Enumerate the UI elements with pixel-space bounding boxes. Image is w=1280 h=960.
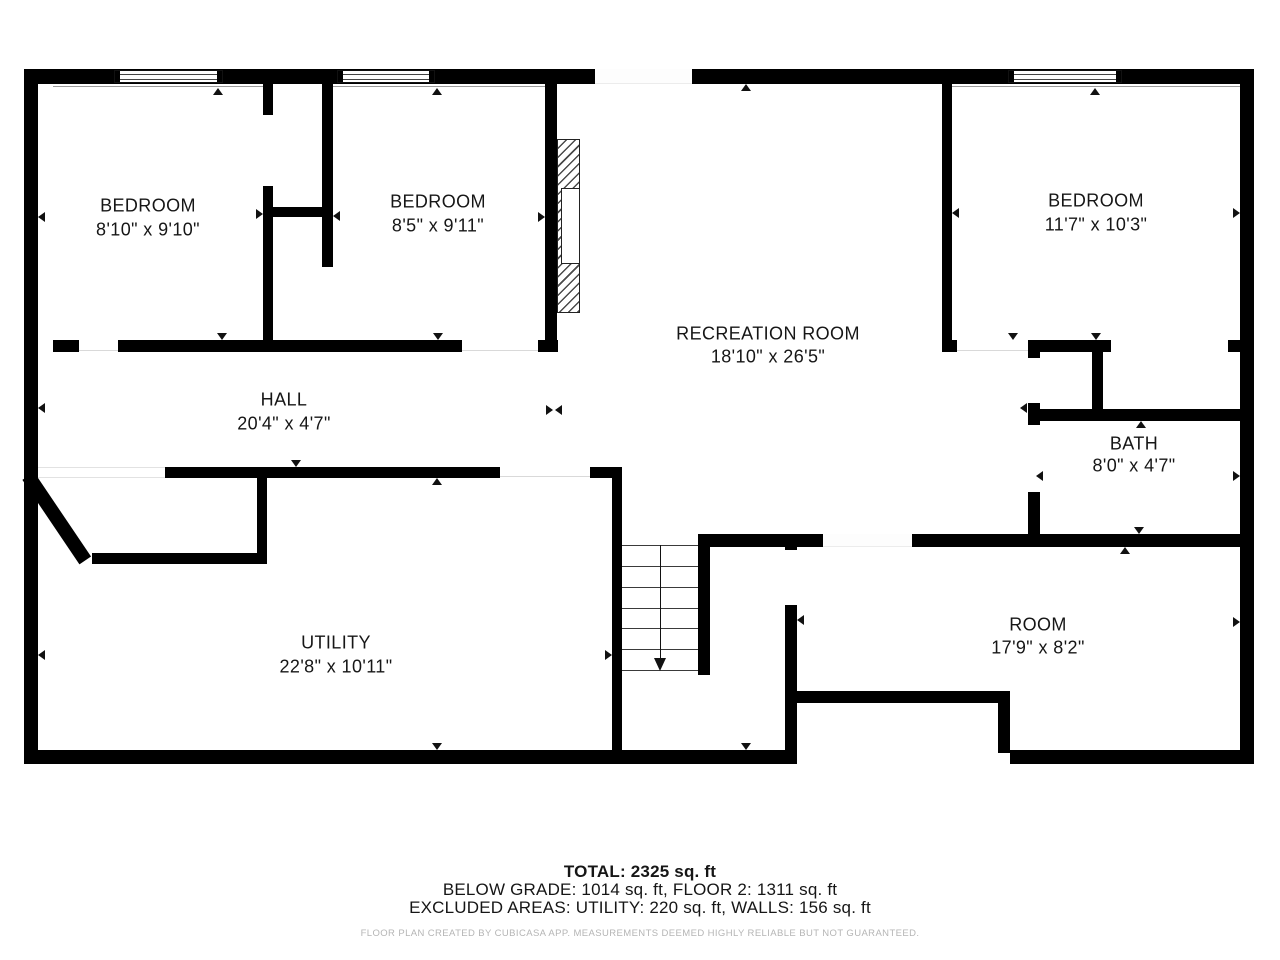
window-symbol bbox=[114, 70, 223, 83]
dimension-marker-left bbox=[38, 403, 45, 413]
dimension-marker-up bbox=[741, 84, 751, 91]
wall bbox=[545, 84, 557, 352]
dimension-marker-up bbox=[432, 88, 442, 95]
wall bbox=[1028, 409, 1240, 421]
wall bbox=[1228, 340, 1240, 352]
wall bbox=[912, 534, 1240, 547]
dimension-marker-up bbox=[1120, 547, 1130, 554]
room-label: BATH bbox=[1110, 434, 1158, 455]
room-dimensions: 8'10" x 9'10" bbox=[96, 220, 200, 241]
window-pane-line bbox=[1009, 79, 1121, 80]
dimension-marker-left bbox=[1036, 471, 1043, 481]
room-dimensions: 11'7" x 10'3" bbox=[1045, 215, 1148, 236]
dimension-marker-right bbox=[546, 405, 553, 415]
door-threshold bbox=[462, 350, 538, 351]
room-label: HALL bbox=[261, 390, 308, 411]
room-dimensions: 18'10" x 26'5" bbox=[711, 347, 825, 368]
room-dimensions: 8'0" x 4'7" bbox=[1092, 456, 1175, 477]
dimension-marker-down bbox=[1008, 333, 1018, 340]
floor-plan-canvas: BEDROOM8'10" x 9'10"BEDROOM8'5" x 9'11"B… bbox=[0, 0, 1280, 960]
dimension-marker-left bbox=[38, 650, 45, 660]
wall bbox=[785, 605, 797, 764]
wall bbox=[797, 691, 1010, 703]
wall bbox=[785, 534, 797, 550]
window-pane-line bbox=[1009, 74, 1121, 75]
room-dimensions: 22'8" x 10'11" bbox=[280, 657, 393, 678]
room-label: UTILITY bbox=[301, 633, 371, 654]
dimension-marker-up bbox=[1090, 88, 1100, 95]
dimension-marker-left bbox=[555, 405, 562, 415]
summary-disclaimer: FLOOR PLAN CREATED BY CUBICASA APP. MEAS… bbox=[0, 928, 1280, 939]
wall bbox=[53, 340, 79, 352]
stair-down-arrow-icon bbox=[654, 658, 666, 671]
summary-excluded: EXCLUDED AREAS: UTILITY: 220 sq. ft, WAL… bbox=[0, 898, 1280, 918]
room-label: ROOM bbox=[1009, 615, 1067, 636]
wall bbox=[1092, 343, 1103, 410]
entry-opening bbox=[595, 69, 692, 84]
wall bbox=[92, 553, 267, 564]
room-label: BEDROOM bbox=[1048, 191, 1144, 212]
dimension-marker-right bbox=[256, 209, 263, 219]
window-pane-line bbox=[338, 79, 434, 80]
dimension-marker-left bbox=[952, 208, 959, 218]
window-symbol bbox=[337, 70, 435, 83]
stair-direction-line bbox=[660, 545, 661, 659]
staircase bbox=[622, 545, 698, 672]
dimension-marker-down bbox=[1134, 527, 1144, 534]
wall bbox=[998, 703, 1010, 753]
dimension-marker-down bbox=[1091, 333, 1101, 340]
wall bbox=[24, 750, 785, 764]
dimension-marker-down bbox=[432, 743, 442, 750]
window-pane-line bbox=[338, 74, 434, 75]
summary-total: TOTAL: 2325 sq. ft bbox=[0, 862, 1280, 882]
door-threshold bbox=[79, 350, 118, 351]
window-end-cap bbox=[217, 71, 222, 82]
wall bbox=[698, 534, 823, 547]
fireplace-hatch bbox=[557, 139, 580, 313]
dimension-marker-right bbox=[1233, 617, 1240, 627]
dimension-marker-right bbox=[605, 650, 612, 660]
window-end-cap bbox=[429, 71, 434, 82]
room-dimensions: 17'9" x 8'2" bbox=[991, 638, 1085, 659]
door-threshold bbox=[500, 476, 590, 477]
dimension-marker-up bbox=[432, 478, 442, 485]
wall bbox=[1240, 69, 1254, 764]
window-pane-line bbox=[115, 74, 222, 75]
wall bbox=[165, 467, 500, 478]
wall bbox=[1010, 750, 1254, 764]
wall bbox=[942, 84, 952, 352]
dimension-marker-right bbox=[1233, 471, 1240, 481]
dimension-marker-up bbox=[1136, 421, 1146, 428]
dimension-marker-left bbox=[333, 211, 340, 221]
room-dimensions: 20'4" x 4'7" bbox=[237, 414, 331, 435]
wall bbox=[1028, 340, 1040, 358]
window-end-cap bbox=[338, 71, 343, 82]
dimension-marker-left bbox=[797, 615, 804, 625]
summary-breakdown: BELOW GRADE: 1014 sq. ft, FLOOR 2: 1311 … bbox=[0, 880, 1280, 900]
room-opening bbox=[823, 534, 912, 547]
wall bbox=[263, 84, 273, 115]
window-end-cap bbox=[1009, 71, 1014, 82]
wall bbox=[257, 478, 267, 553]
wall bbox=[263, 186, 273, 352]
dimension-marker-down bbox=[433, 333, 443, 340]
hall-opening bbox=[38, 467, 165, 478]
wall bbox=[1028, 492, 1040, 545]
wall bbox=[322, 84, 333, 267]
window-symbol bbox=[1008, 70, 1122, 83]
wall bbox=[612, 467, 622, 764]
room-label: RECREATION ROOM bbox=[676, 324, 860, 345]
window-pane-line bbox=[115, 79, 222, 80]
fireplace-insert bbox=[561, 188, 580, 264]
dimension-marker-down bbox=[291, 460, 301, 467]
dimension-marker-right bbox=[1233, 208, 1240, 218]
dimension-marker-left bbox=[1020, 403, 1027, 413]
room-dimensions: 8'5" x 9'11" bbox=[392, 216, 484, 237]
wall-face-line bbox=[333, 86, 545, 87]
wall-face-line bbox=[952, 86, 1240, 87]
wall bbox=[118, 340, 462, 352]
room-label: BEDROOM bbox=[100, 196, 196, 217]
wall bbox=[698, 534, 710, 675]
room-label: BEDROOM bbox=[390, 192, 486, 213]
dimension-marker-up bbox=[213, 88, 223, 95]
dimension-marker-down bbox=[217, 333, 227, 340]
wall bbox=[1028, 403, 1040, 425]
dimension-marker-right bbox=[538, 212, 545, 222]
window-end-cap bbox=[1116, 71, 1121, 82]
window-end-cap bbox=[115, 71, 120, 82]
wall-face-line bbox=[53, 86, 263, 87]
dimension-marker-down bbox=[741, 743, 751, 750]
door-threshold bbox=[957, 350, 1028, 351]
wall bbox=[24, 69, 38, 764]
dimension-marker-left bbox=[38, 212, 45, 222]
